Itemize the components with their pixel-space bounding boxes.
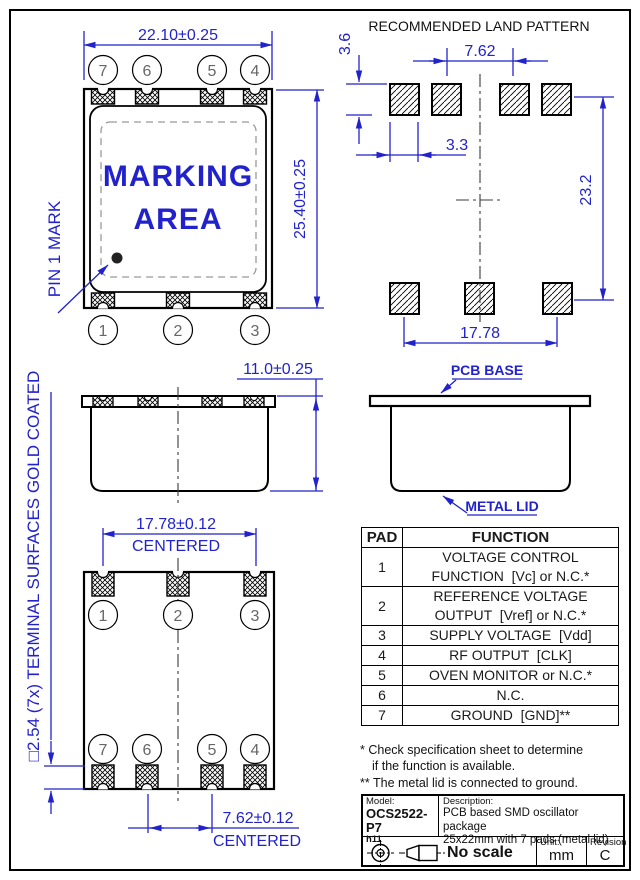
svg-text:7.62: 7.62: [464, 43, 495, 60]
dimension-terminal-span: 17.78±0.12 CENTERED: [103, 516, 256, 566]
title-block-unit-cell: Unit: mm: [537, 837, 587, 865]
metal-lid-callout: METAL LID: [443, 496, 539, 515]
function-cell: REFERENCE VOLTAGEOUTPUT [Vref] or N.C.*: [403, 587, 619, 626]
pin1-mark-label: PIN 1 MARK: [45, 200, 64, 297]
terminal-note-callout: □2.54 (7x) TERMINAL SURFACES GOLD COATED: [24, 371, 51, 762]
svg-text:25.40±0.25: 25.40±0.25: [292, 159, 309, 239]
pad-function-table: PAD FUNCTION 1VOLTAGE CONTROLFUNCTION [V…: [361, 527, 619, 726]
pin-balloon: 5: [208, 63, 217, 80]
metal-lid-profile: [391, 406, 570, 491]
description-label: Description:: [443, 797, 619, 807]
pin-balloon: 4: [251, 63, 260, 80]
land-pattern-view: RECOMMENDED LAND PATTERN 3.6: [337, 18, 614, 347]
projection-symbols: [367, 840, 447, 866]
engineering-drawing-page: MARKING AREA PIN 1 MARK 7 6 5 4 1 2 3 22…: [0, 0, 640, 880]
pin-balloon: 1: [99, 608, 108, 625]
lid-outline: [90, 106, 266, 292]
svg-text:17.78±0.12: 17.78±0.12: [136, 516, 216, 533]
model-number: OCS2522-P7: [366, 807, 435, 835]
bottom-view-terminals-bottom: [92, 765, 266, 789]
title-block-description-cell: Description: PCB based SMD oscillator pa…: [439, 796, 623, 836]
pin-balloon: 5: [208, 742, 217, 759]
pin-balloon: 2: [174, 323, 183, 340]
footnote-1: * Check specification sheet to determine: [360, 742, 626, 759]
svg-text:17.78: 17.78: [460, 325, 500, 342]
top-view-terminals-bottom: [92, 293, 267, 309]
dimension-land-pad-height: 3.6: [337, 33, 387, 144]
svg-text:7.62±0.12: 7.62±0.12: [222, 810, 293, 827]
table-row: 7GROUND [GND]**: [362, 706, 619, 726]
pin-balloon: 2: [174, 608, 183, 625]
bottom-view-terminals-top: [92, 571, 266, 596]
svg-text:3.6: 3.6: [337, 33, 354, 55]
third-angle-projection-icon: [367, 840, 394, 866]
pin-balloon: 7: [99, 63, 108, 80]
dimension-land-inner-pitch: 7.62: [413, 43, 548, 76]
function-cell: VOLTAGE CONTROLFUNCTION [Vc] or N.C.*: [403, 548, 619, 587]
title-block-revision-cell: Revision C: [587, 837, 623, 865]
side-view-left: 11.0±0.25: [82, 361, 323, 506]
function-cell: OVEN MONITOR or N.C.*: [403, 666, 619, 686]
title-block: Model: OCS2522-P7 h11 Description: PCB b…: [361, 794, 625, 867]
svg-text:CENTERED: CENTERED: [132, 538, 220, 555]
function-cell: GROUND [GND]**: [403, 706, 619, 726]
truncated-cone-projection-icon: [399, 846, 445, 861]
table-row: 2REFERENCE VOLTAGEOUTPUT [Vref] or N.C.*: [362, 587, 619, 626]
table-row: 4RF OUTPUT [CLK]: [362, 646, 619, 666]
bottom-view-pin-numbers: 1 2 3 7 6 5 4: [89, 601, 270, 764]
table-header-pad: PAD: [362, 528, 403, 548]
marking-area-text-line2: AREA: [133, 203, 222, 236]
dimension-terminal-pitch: 7.62±0.12 CENTERED: [128, 794, 301, 850]
land-pattern-title: RECOMMENDED LAND PATTERN: [368, 18, 589, 34]
pad-cell: 6: [362, 686, 403, 706]
pad-cell: 7: [362, 706, 403, 726]
svg-text:11.0±0.25: 11.0±0.25: [243, 361, 313, 378]
pcb-base-callout: PCB BASE: [441, 362, 523, 393]
function-cell: RF OUTPUT [CLK]: [403, 646, 619, 666]
pin-balloon: 1: [99, 323, 108, 340]
footnote-2: ** The metal lid is connected to ground.: [360, 775, 626, 792]
svg-text:23.2: 23.2: [578, 174, 595, 205]
table-row: 1VOLTAGE CONTROLFUNCTION [Vc] or N.C.*: [362, 548, 619, 587]
table-row: 6N.C.: [362, 686, 619, 706]
pin1-mark-dot: [112, 253, 123, 264]
dimension-package-height: 11.0±0.25: [237, 361, 323, 491]
dimension-height: 25.40±0.25: [276, 90, 324, 308]
top-view: MARKING AREA PIN 1 MARK 7 6 5 4 1 2 3 22…: [45, 27, 324, 345]
svg-text:PCB BASE: PCB BASE: [451, 362, 523, 378]
pad-cell: 1: [362, 548, 403, 587]
bottom-view: 1 2 3 7 6 5 4 17.78±0.12 CENTERED 7.62±0…: [24, 371, 301, 850]
pin-balloon: 3: [251, 323, 260, 340]
pin-balloon: 6: [143, 63, 152, 80]
svg-text:METAL LID: METAL LID: [465, 498, 538, 514]
marking-area-boundary: [101, 122, 256, 277]
pin-balloon: 7: [99, 742, 108, 759]
pad-cell: 3: [362, 626, 403, 646]
function-cell: SUPPLY VOLTAGE [Vdd]: [403, 626, 619, 646]
description-line1: PCB based SMD oscillator package: [443, 807, 619, 834]
lid-profile: [91, 407, 268, 491]
svg-text:22.10±0.25: 22.10±0.25: [138, 27, 218, 44]
svg-text:□2.54 (7x) TERMINAL SURFACES G: □2.54 (7x) TERMINAL SURFACES GOLD COATED: [24, 371, 43, 762]
land-pattern-pads: [390, 84, 572, 314]
side-view-right: PCB BASE METAL LID: [370, 362, 590, 515]
marking-area-text-line1: MARKING: [103, 160, 253, 193]
scale-note: No scale: [447, 844, 513, 862]
pad-cell: 2: [362, 587, 403, 626]
title-block-scale-cell: No scale: [363, 837, 537, 865]
pad-cell: 5: [362, 666, 403, 686]
svg-text:CENTERED: CENTERED: [213, 833, 301, 850]
pin-balloon: 4: [251, 742, 260, 759]
dimension-land-row-pitch: 23.2: [574, 97, 614, 300]
footnote-1b: if the function is available.: [360, 758, 638, 775]
dimension-land-pad-width: 3.3: [356, 122, 468, 162]
pin-balloon: 3: [251, 608, 260, 625]
title-block-model-cell: Model: OCS2522-P7 h11: [363, 796, 439, 836]
dimension-terminal-size: [44, 741, 85, 814]
table-header-function: FUNCTION: [403, 528, 619, 548]
pad-cell: 4: [362, 646, 403, 666]
table-row: 5OVEN MONITOR or N.C.*: [362, 666, 619, 686]
pin-balloon: 6: [143, 742, 152, 759]
revision-value: C: [590, 848, 620, 864]
table-row: 3SUPPLY VOLTAGE [Vdd]: [362, 626, 619, 646]
unit-value: mm: [540, 848, 583, 864]
function-cell: N.C.: [403, 686, 619, 706]
svg-text:3.3: 3.3: [446, 137, 468, 154]
